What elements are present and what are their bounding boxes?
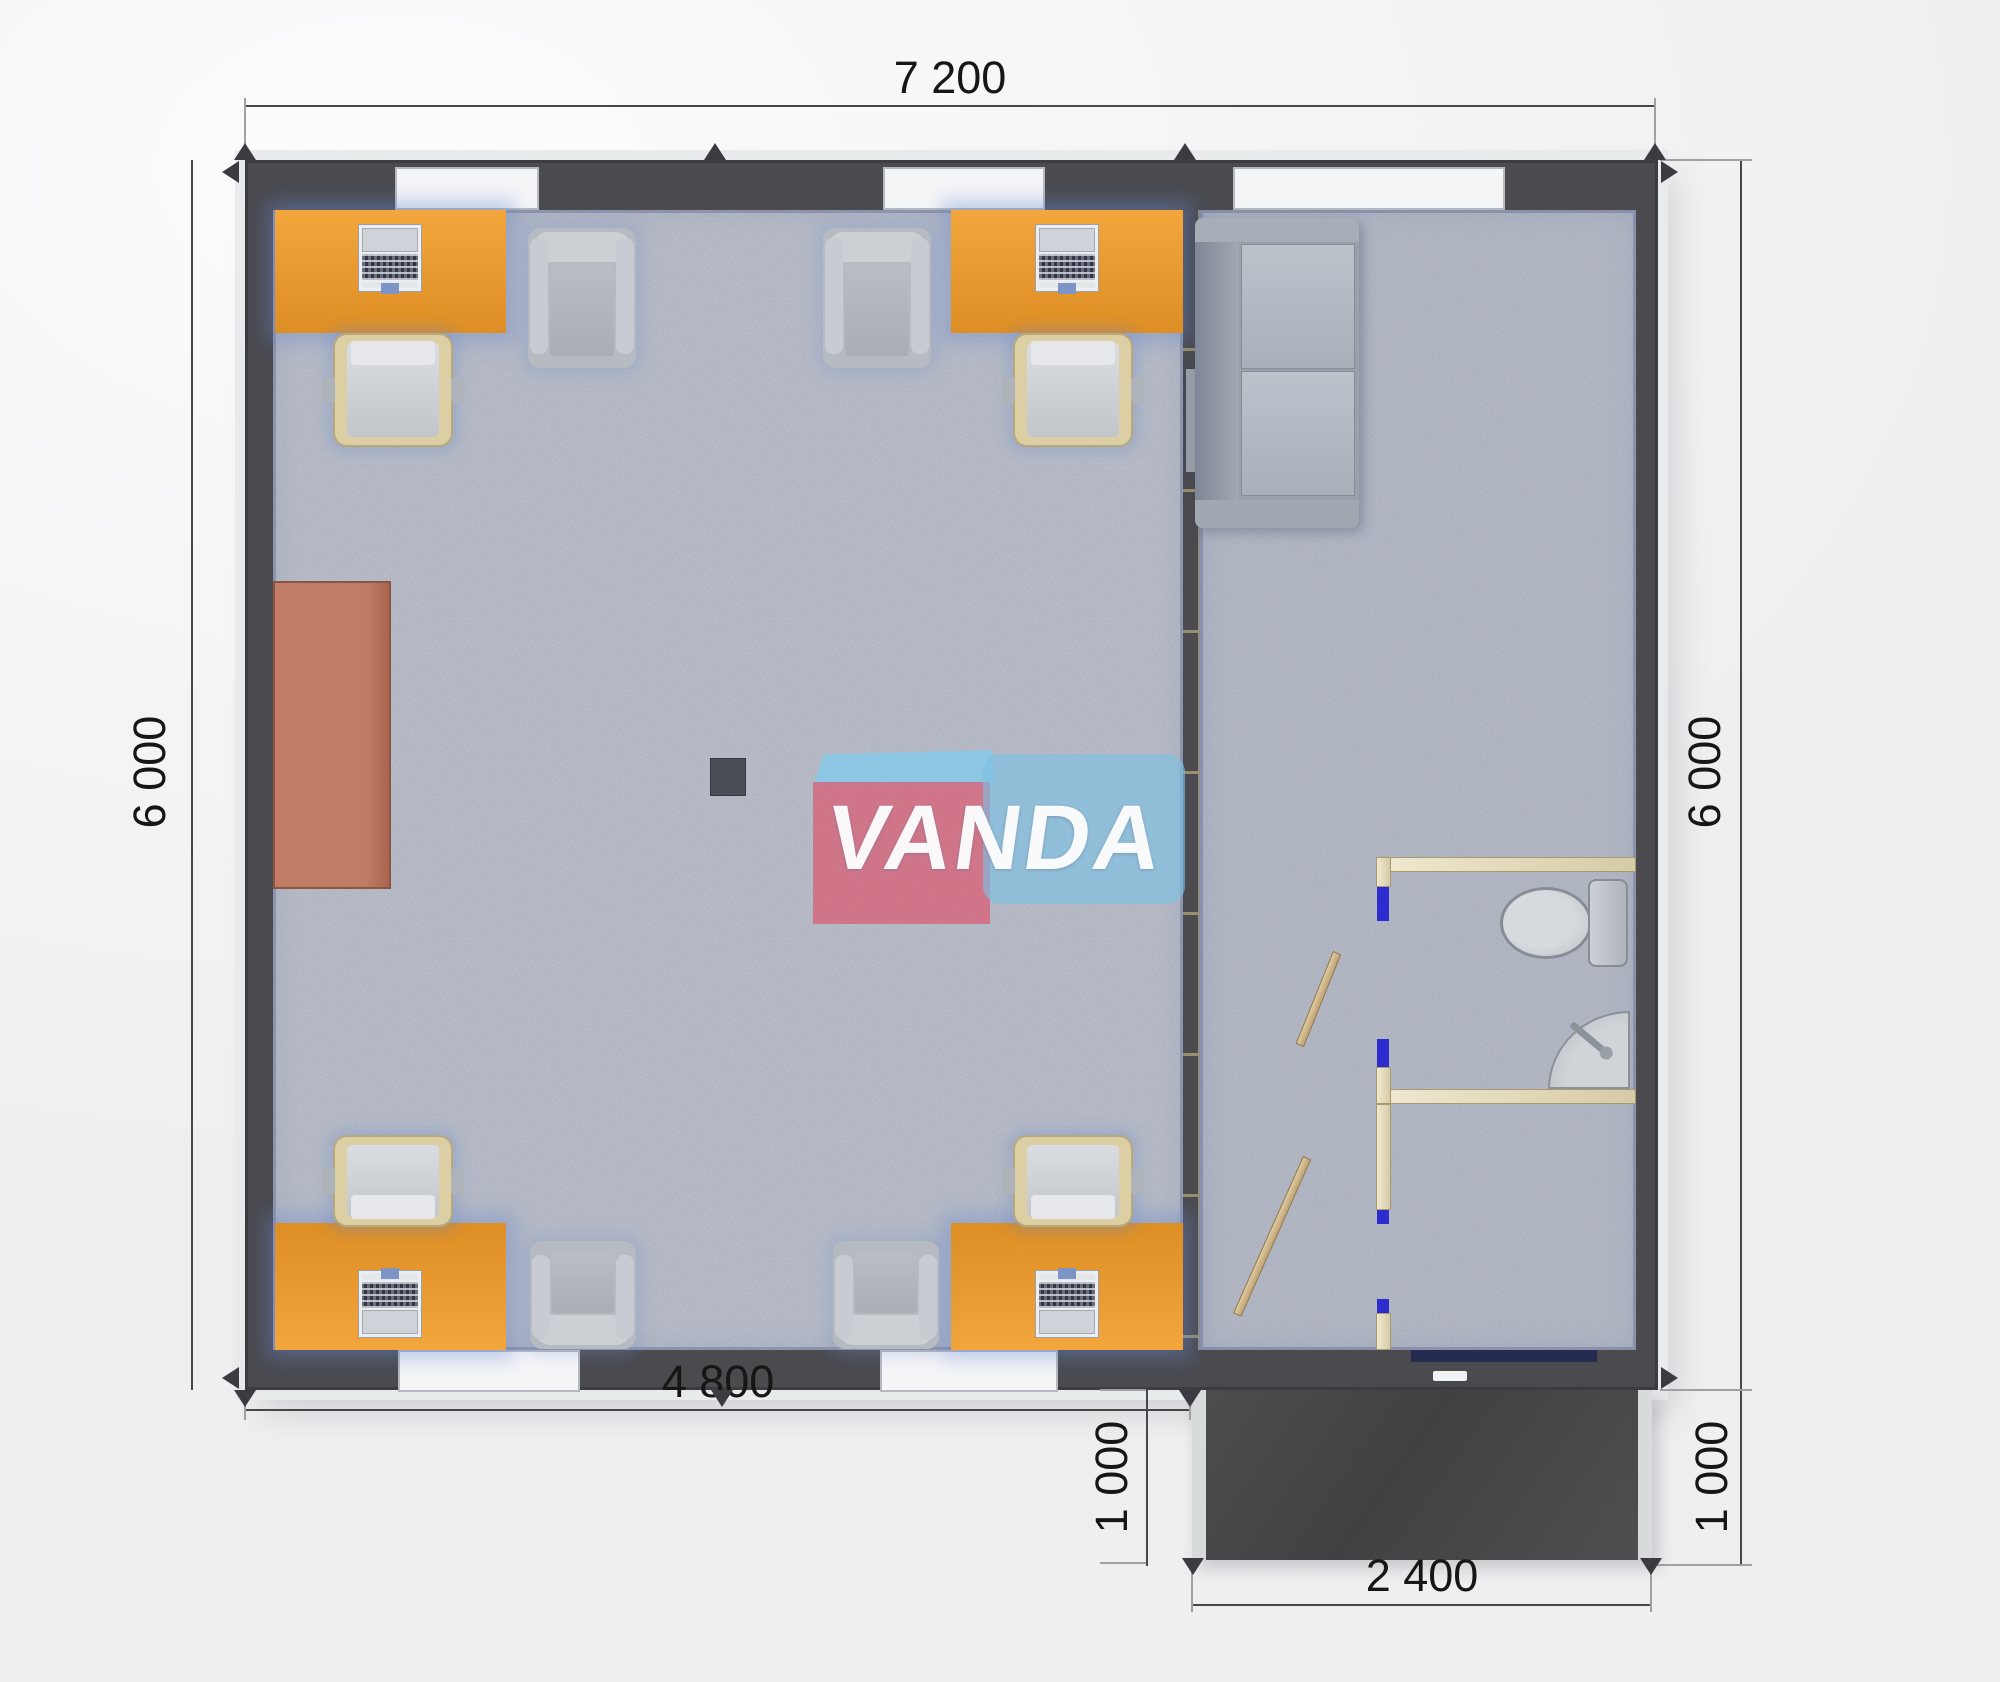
armchair-top-2 [823,228,931,368]
laptop-keyboard [1039,254,1095,280]
floor-outlet-box [710,758,746,796]
armchair-armrest [919,1255,937,1339]
chair-armrest [1131,1168,1144,1194]
armchair-armrest [616,238,634,354]
desk-bottom-left [275,1223,506,1350]
dimension-arrow [1174,143,1196,160]
dim-label-right-height: 6 000 [1682,697,1728,847]
laptop-keyboard [362,1282,418,1308]
sofa-armrest [1195,500,1359,528]
logo-text: VANDA [821,786,1196,891]
laptop-icon [1035,224,1099,292]
dimension-arrow [222,161,239,183]
sofa-cushion [1241,244,1355,369]
dimension-line-bottom-left [245,1409,1191,1411]
chair-back [1031,1195,1115,1219]
storage-door-jamb [1377,1210,1389,1224]
laptop-icon [358,1270,422,1338]
dimension-arrow [1179,1390,1201,1407]
dimension-arrow [234,143,256,160]
laptop-screen [362,228,418,252]
chair-armrest [1002,377,1015,403]
chair-armrest [322,1168,335,1194]
chair-armrest [451,1168,464,1194]
armchair-bottom-1 [530,1241,636,1349]
laptop-keyboard [362,254,418,280]
porch [1192,1390,1652,1560]
armchair-armrest [616,1255,634,1339]
dimension-line-porch-left [1146,1390,1148,1566]
office-chair-bottom-left [333,1135,453,1227]
dimension-line-top [245,105,1655,107]
window-top-3 [1233,167,1505,210]
armchair-seat [552,1253,614,1313]
dimension-arrow [1644,143,1666,160]
laptop-touchpad [1058,283,1076,294]
entrance-door [1411,1350,1597,1362]
extension-line [1655,1564,1752,1566]
dimension-arrow [711,1390,733,1407]
laptop-screen [1039,1310,1095,1334]
armchair-seat [845,264,909,356]
armchair-armrest [835,1255,853,1339]
side-table-brown [273,581,391,889]
dimension-arrow [222,1367,239,1389]
toilet-tank-symbol [1588,879,1628,967]
logo-watermark-flap [813,750,993,786]
laptop-palmrest [362,1274,418,1280]
armchair-seat [550,264,614,356]
chair-armrest [322,377,335,403]
office-chair-top-left [333,333,453,447]
chair-back [1031,341,1115,365]
sofa-cushion [1241,371,1355,496]
laptop-touchpad [381,1268,399,1279]
armchair-seat [855,1253,917,1313]
laptop-keyboard [1039,1282,1095,1308]
laptop-icon [1035,1270,1099,1338]
extension-line [1100,1562,1146,1564]
laptop-palmrest [1039,282,1095,288]
laptop-screen [362,1310,418,1334]
chair-back [351,1195,435,1219]
bathroom-wall-top [1376,857,1636,872]
laptop-touchpad [1058,1268,1076,1279]
desk-bottom-right [951,1223,1183,1350]
chair-back [351,341,435,365]
dimension-arrow [1640,1558,1662,1575]
dimension-line-right [1740,160,1742,1566]
porch-side-rail [1638,1390,1652,1560]
entrance-door-handle [1433,1371,1467,1381]
armchair-top-1 [528,228,636,368]
desk-top-left [275,210,506,333]
storage-door-jamb [1377,1299,1389,1313]
armchair-bottom-2 [833,1241,939,1349]
bathroom-door-jamb [1377,887,1389,921]
extension-line [1660,1389,1752,1391]
dim-label-porch-width: 2 400 [1192,1550,1652,1602]
dim-label-porch-height-left: 1 000 [1089,1402,1135,1552]
storage-wall-left [1376,1104,1391,1210]
dim-label-top-width: 7 200 [245,52,1655,104]
laptop-screen [1039,228,1095,252]
bathroom-wall-left [1376,857,1391,887]
window-top-1 [395,167,539,210]
armchair-armrest [532,1255,550,1339]
sofa-backrest [1195,218,1239,528]
armchair-armrest [825,238,843,354]
storage-wall-left [1376,1313,1391,1350]
bathroom-wall-bottom [1376,1089,1636,1104]
floor-plan-canvas: VANDA 7 200 6 000 6 000 4 800 1 000 1 00… [0,0,2000,1682]
armchair-armrest [911,238,929,354]
bathroom-door-jamb [1377,1039,1389,1067]
laptop-palmrest [1039,1274,1095,1280]
dimension-arrow [1182,1558,1204,1575]
dimension-line-porch-bottom [1192,1604,1652,1606]
desk-top-right [951,210,1183,333]
laptop-touchpad [381,283,399,294]
bathroom-wall-left [1376,1067,1391,1104]
dim-label-porch-height-right: 1 000 [1689,1402,1735,1552]
dimension-arrow [1661,1367,1678,1389]
laptop-icon [358,224,422,292]
chair-armrest [1131,377,1144,403]
sofa [1195,218,1359,528]
toilet-symbol [1500,887,1592,959]
dimension-arrow [1661,161,1678,183]
chair-armrest [451,377,464,403]
armchair-armrest [530,238,548,354]
porch-side-rail [1192,1390,1206,1560]
dimension-line-left [191,160,193,1390]
window-top-2 [883,167,1045,210]
office-chair-top-right [1013,333,1133,447]
sofa-armrest [1195,218,1359,242]
office-chair-bottom-right [1013,1135,1133,1227]
dimension-arrow [704,143,726,160]
chair-armrest [1002,1168,1015,1194]
dim-label-left-height: 6 000 [127,697,173,847]
laptop-palmrest [362,282,418,288]
dimension-arrow [234,1390,256,1407]
